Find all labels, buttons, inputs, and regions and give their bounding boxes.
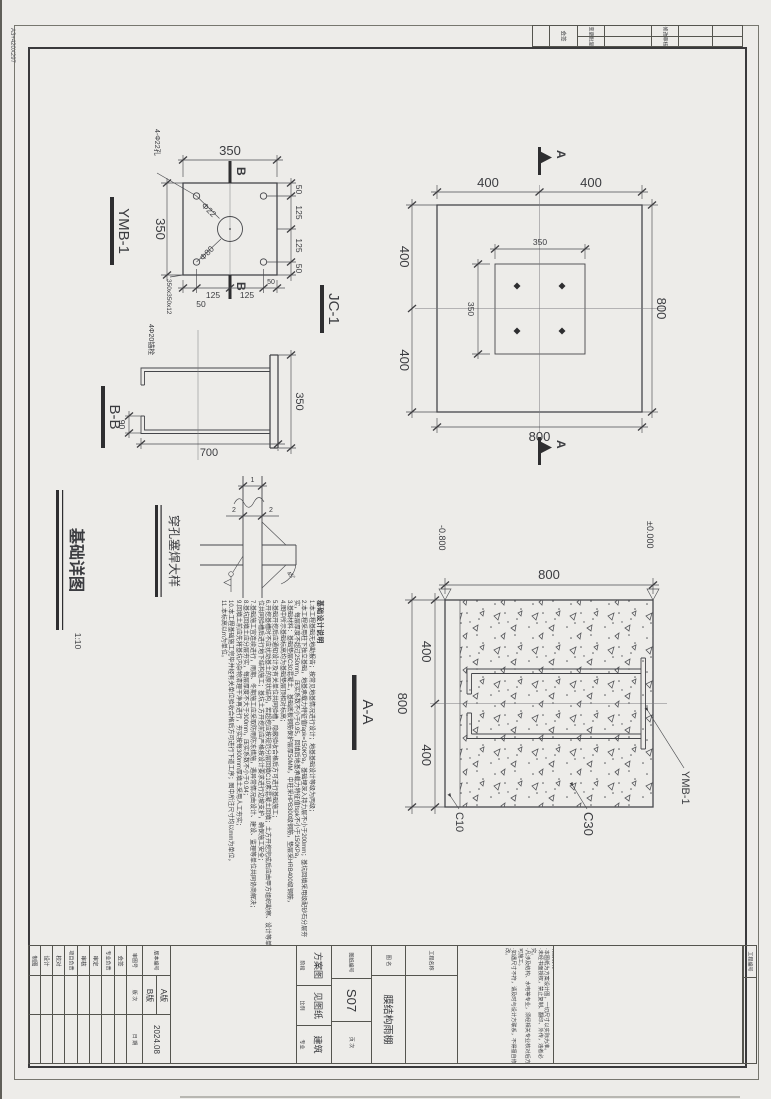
tb-date-value: 2024.08 bbox=[142, 1014, 171, 1064]
tb-drawing-name: 膜结构雨棚 bbox=[371, 975, 406, 1064]
ymb1-dim-bottom-left: 50 bbox=[196, 299, 206, 309]
aa-level-left: -0.800 bbox=[437, 525, 447, 551]
foundation-notes: 基础设计说明 1.本工程基础无地勘报告；按常见地基情况进行设计；地基基础设计等级… bbox=[141, 600, 323, 948]
jc1-plan-drawing: 400 400 400 400 800 800 350 350 A A JC-1 bbox=[300, 135, 690, 485]
bb-title-underline bbox=[101, 386, 105, 448]
tb-scale-cell: 比例 见图纸 bbox=[296, 985, 332, 1026]
section-mark-b-top: B bbox=[234, 167, 248, 176]
sign-table-label-check: 审核 bbox=[651, 36, 679, 47]
aa-dim-top: 800 bbox=[538, 567, 560, 582]
plugweld-dim-2b: 2 bbox=[269, 507, 273, 514]
weld-symbol-flag bbox=[224, 576, 231, 592]
tb-stage-cell: 阶段 方案图 bbox=[296, 945, 332, 986]
ymb1-dim-bottom-1: 125 bbox=[240, 290, 254, 300]
tb-col-label: 项目负责 bbox=[64, 945, 78, 976]
plugweld-title: 穿孔塞焊大样 bbox=[167, 515, 182, 587]
tb-discipline-cell: 专业 建筑 bbox=[296, 1025, 332, 1064]
ymb1-hole-dia-label: Φ22 bbox=[200, 200, 219, 219]
jc1-dim-right: 800 bbox=[654, 298, 669, 320]
ymb1-holes-note: 4-Φ22孔 bbox=[153, 129, 161, 156]
ymb1-title-underline bbox=[110, 197, 114, 265]
aa-section-drawing: 800 -0.800 ±0.000 400 400 800 A-A C10 C3… bbox=[335, 505, 755, 870]
aa-c30-label: C30 bbox=[581, 812, 596, 836]
special-note-item: ·未经书面授权，禁止复制、翻印、外传，违者必究。 bbox=[530, 948, 543, 1064]
scan-edge-left bbox=[0, 0, 2, 1099]
note-item: 2.本工程采用柱下独立基础，地基承载力特征值fapk=150KPa，基础埋深入持… bbox=[292, 600, 307, 948]
aa-plate-label: YMB-1 bbox=[679, 771, 691, 805]
foundation-title: 基础详图 bbox=[67, 527, 86, 592]
notes-title: 基础设计说明 bbox=[316, 600, 323, 948]
sign-table-sign-label: 会签 bbox=[549, 25, 578, 47]
aa-dim-left-1: 400 bbox=[419, 744, 434, 766]
sign-table-cell bbox=[712, 36, 743, 47]
jc1-anchor-bolt bbox=[514, 283, 521, 290]
special-note-item: ·如遇尺寸不符，请及时与设计方联系，不得擅自修改。 bbox=[503, 948, 516, 1064]
jc1-anchor-bolt bbox=[559, 283, 566, 290]
special-note-item: ·本图纸为方案设计图，一切尺寸以实际为准。 bbox=[543, 948, 550, 1064]
sign-table-cell bbox=[532, 25, 550, 47]
note-item: 3.基础材料：基础垫层C30混凝土，基础底板钢筋保护层厚50MM，中柱采HPB3… bbox=[285, 600, 292, 948]
jc1-baseplate bbox=[495, 264, 585, 354]
sign-table-label-approve: 批复 bbox=[577, 36, 605, 47]
tb-date-label: 日 期 bbox=[126, 1014, 143, 1064]
plugweld-weld-lower bbox=[262, 565, 286, 588]
jc1-title: JC-1 bbox=[325, 293, 342, 325]
note-item: 11.本标高以m为单位。 bbox=[219, 600, 226, 948]
tb-rev-label: 版 次 bbox=[126, 975, 143, 1015]
note-item: 7.基础施工宜连续进行，雨期、冬期施工应采取防雨防冻措施，遇异常情况由设计、建设… bbox=[248, 600, 255, 948]
note-item: 9.回填土前应先将基坑内杂物清理干净再进行，夯实按每300mm厚填土采用人工夯实… bbox=[233, 600, 240, 948]
ymb1-bolt-hole bbox=[260, 259, 266, 265]
aa-c10-label: C10 bbox=[453, 812, 465, 832]
aa-dim-left-0: 400 bbox=[419, 641, 434, 663]
tb-project-name bbox=[405, 975, 458, 1064]
note-item: 10.本工程基础施工完毕并经有关单位验收合格后方可进行下道工序；图中所注尺寸均以… bbox=[226, 600, 233, 948]
bb-section-drawing: 4Φ20锚栓 700 350 90 B-B bbox=[95, 318, 310, 473]
jc1-plate-dim-v: 350 bbox=[466, 302, 476, 316]
note-item: 1.本工程基础无地勘报告；按常见地基情况进行设计；地基基础设计等级为丙级； bbox=[306, 600, 313, 948]
plugweld-weld-upper bbox=[262, 522, 286, 545]
plugweld-title-underline bbox=[155, 505, 158, 597]
plugweld-angle: 45° bbox=[285, 571, 296, 582]
ymb1-bolt-hole bbox=[260, 193, 266, 199]
bb-title: B-B bbox=[106, 404, 123, 429]
jc1-anchor-bolt bbox=[514, 328, 521, 335]
foundation-title-scale: 1:10 bbox=[73, 633, 83, 650]
aa-title: A-A bbox=[359, 699, 376, 724]
tb-dwgno-label: 图纸编号 bbox=[331, 945, 372, 979]
jc1-dim-top-0: 400 bbox=[477, 175, 499, 190]
jc1-anchor-bolt bbox=[559, 328, 566, 335]
bb-anchor-top bbox=[141, 368, 270, 385]
tb-name-label: 图 名 bbox=[371, 945, 406, 976]
bb-anchor-note: 4Φ20锚栓 bbox=[147, 324, 156, 355]
section-mark-a-bottom: A bbox=[554, 440, 568, 449]
jc1-title-underline bbox=[320, 285, 324, 333]
scan-edge-bottom bbox=[180, 1096, 740, 1098]
jc1-plate-dim-h: 350 bbox=[533, 237, 547, 247]
ymb1-plate-note: 350x350x12 bbox=[165, 279, 172, 315]
plugweld-detail: 1 2 2 45° bbox=[200, 476, 296, 598]
tb-empty-cell bbox=[553, 945, 743, 1064]
foundation-title-underline bbox=[56, 490, 59, 630]
sign-table-cell bbox=[678, 36, 713, 47]
tb-rev-b: B版 bbox=[142, 975, 157, 1015]
jc1-dim-left-1: 400 bbox=[397, 349, 412, 371]
tb-col-label: 专业负责 bbox=[101, 945, 115, 976]
jc1-dim-top-1: 400 bbox=[580, 175, 602, 190]
note-item: 8.基坑回填土应分层夯实，每层厚度不大于300mm，压实系数不小于0.94； bbox=[241, 600, 248, 948]
weld-symbol-circle bbox=[229, 572, 234, 577]
note-item: 6.开挖基槽时不应扰动基土的原状结构，若超挖应按规范分层回填C10素混凝土回填；… bbox=[255, 600, 270, 948]
tb-review-no-label: 审图号 bbox=[126, 945, 143, 976]
tb-version-label: 版本编号 bbox=[142, 945, 171, 976]
jc1-dim-left-0: 400 bbox=[397, 246, 412, 268]
note-item: 5.基础开挖后应通知设计及有关单位共同验槽，隐蔽验收合格后方可进行基础施工； bbox=[270, 600, 277, 948]
bb-anchor-bottom bbox=[141, 416, 270, 434]
ymb1-dim-left: 350 bbox=[153, 218, 168, 240]
tb-dwgno: S07 bbox=[331, 978, 372, 1022]
special-note-item: ·凡涉及结构、水电等专业，须经相关专业核对后方可施工。 bbox=[516, 948, 529, 1064]
ymb1-dim-top: 350 bbox=[219, 143, 241, 158]
aa-title-underline bbox=[352, 675, 357, 750]
ymb1-dim-bottom-0: 125 bbox=[206, 290, 220, 300]
ymb1-title: YMB-1 bbox=[115, 208, 132, 254]
aa-level-right: ±0.000 bbox=[645, 521, 655, 548]
note-item: 4.图中所示基础标高均为基础垫层顶相对标高； bbox=[277, 600, 284, 948]
sign-table-cell bbox=[604, 36, 652, 47]
tb-stamp-area bbox=[170, 945, 297, 1064]
ymb1-detail-drawing: 4-Φ22孔 Φ22 Φ80 350 B B 350 50 125 125 50… bbox=[95, 125, 325, 340]
paper-size-label: A3+420X297 bbox=[3, 28, 15, 98]
bb-plate bbox=[270, 355, 278, 448]
ymb1-dim-bottom-right: 50 bbox=[267, 279, 275, 286]
tb-project-no-cell bbox=[743, 977, 757, 1064]
section-mark-a-top: A bbox=[554, 150, 568, 159]
tb-special-notes: 特别说明： ·本图纸为方案设计图，一切尺寸以实际为准。 ·未经书面授权，禁止复制… bbox=[457, 945, 554, 1064]
tb-rev-a: A版 bbox=[156, 975, 171, 1015]
tb-project-no-label: 工程编号 bbox=[743, 945, 757, 978]
tb-page-label: 页 次 bbox=[331, 1021, 372, 1064]
plugweld-dim-1: 1 bbox=[251, 477, 255, 484]
tb-project-label: 工程名称 bbox=[405, 945, 458, 976]
aa-dim-left-total: 800 bbox=[395, 693, 410, 715]
plugweld-dim-2a: 2 bbox=[232, 507, 236, 514]
